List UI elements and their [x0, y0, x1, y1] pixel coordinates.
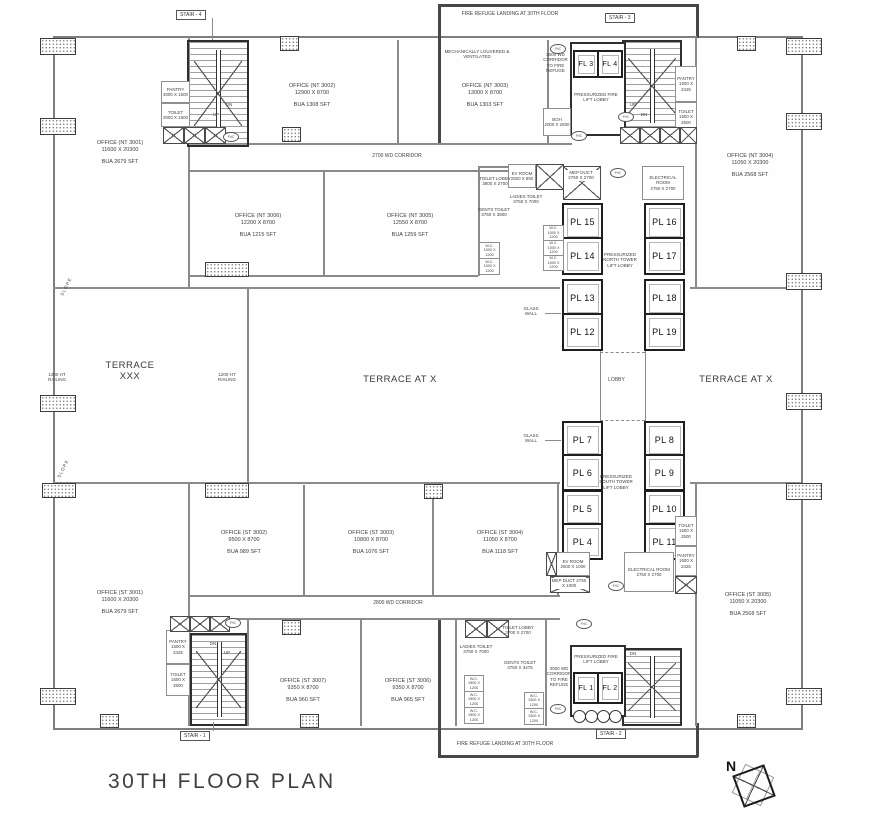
- office-dims: 12550 X 8700: [360, 220, 460, 227]
- column-marker: [100, 714, 119, 728]
- glass-wall-label: GLASS WALL: [518, 306, 544, 317]
- column-marker: [786, 393, 822, 410]
- room-label: LADIES TOILET: [510, 194, 543, 199]
- stair-2-tag: STAIR - 2: [596, 729, 626, 739]
- column-marker: [40, 118, 76, 135]
- shaft-duct: [536, 164, 564, 190]
- office-name: OFFICE (NT 3005): [360, 213, 460, 220]
- wc-cubicle: W.C.1500 X 1200: [543, 225, 564, 241]
- wc-cubicle: W.C.1500 X 1200: [464, 675, 484, 692]
- fire-corridor-label-bottom: 3000 WD CORRIDOR TO FIRE REFUGE: [546, 666, 572, 688]
- office-dims: 9500 X 8700: [194, 537, 294, 544]
- room-dims: 3800 X 2700: [482, 181, 508, 186]
- office-dims: 13000 X 8700: [435, 90, 535, 97]
- fhc-tag: FHC: [608, 581, 624, 591]
- pantry-room: PANTRY1500 X 2425: [675, 546, 697, 576]
- wall: [360, 618, 362, 726]
- lift-pl19: PL 19: [644, 313, 685, 351]
- room-label: TOILET LOBBY: [479, 176, 511, 181]
- office-label-nt3006: OFFICE (NT 3006)12200 X 8700BUA 1215 SFT: [208, 213, 308, 239]
- wc-cubicle: W.C.1500 X 1200: [524, 708, 544, 725]
- office-dims: 11050 X 20300: [698, 599, 798, 606]
- mep-duct-label: MEP DUCT 2750 X 1000: [551, 578, 587, 589]
- room-dims: 2750 X 2700: [568, 175, 594, 180]
- column-marker: [282, 620, 301, 635]
- office-label-st3004: OFFICE (ST 3004)11050 X 8700BUA 1118 SFT: [450, 530, 550, 556]
- office-area: BUA 2568 SFT: [698, 611, 798, 618]
- office-label-nt3004: OFFICE (NT 3004)11050 X 20300BUA 2568 SF…: [700, 153, 800, 179]
- refuge-note-top: FIRE REFUGE LANDING AT 30TH FLOOR: [430, 11, 590, 17]
- room-dims: 1500 X 2500: [167, 677, 189, 687]
- column-marker: [40, 38, 76, 55]
- office-dims: 11600 X 20300: [60, 147, 180, 154]
- room-dims: 1500 X 1200: [465, 713, 483, 722]
- railing-label-right: 1200 HT RAILING: [212, 372, 242, 383]
- room-dims: 3000 X 1500: [163, 115, 188, 120]
- office-name: OFFICE (NT 3001): [60, 140, 180, 147]
- room-dims: 3750 X 7000: [463, 649, 489, 654]
- lift-pl7: PL 7: [562, 421, 603, 458]
- stair-1-tag: STAIR - 1: [180, 731, 210, 741]
- floor-plan-canvas: FIRE REFUGE LANDING AT 30TH FLOOR FIRE R…: [0, 0, 879, 814]
- room-label: LADIES TOILET: [460, 644, 493, 649]
- room-dims: 1500 X 1200: [544, 261, 563, 270]
- room-dims: 2750 X 2700: [651, 186, 676, 191]
- office-area: BUA 965 SFT: [360, 697, 456, 704]
- gents-toilet-label: GENTS TOILET3750 X 3800: [474, 207, 514, 218]
- room-dims: 1500 X 1200: [525, 698, 543, 707]
- compass-square: [732, 764, 776, 808]
- fhc-tag: FHC: [225, 618, 241, 628]
- stair-up-label: UP: [209, 112, 223, 117]
- refuge-outline: [438, 755, 698, 758]
- office-dims: 10800 X 8700: [321, 537, 421, 544]
- wc-cubicle: W.C.1500 X 1200: [543, 255, 564, 271]
- lift-pl14: PL 14: [562, 237, 603, 275]
- wall: [600, 345, 601, 425]
- lift-pl16-label: PL 16: [652, 217, 677, 227]
- column-marker: [786, 688, 822, 705]
- lift-fl3: FL 3: [573, 50, 599, 78]
- corridor-label-top: 2700 WD CORRIDOR: [322, 153, 472, 159]
- fhc-tag: FHC: [571, 131, 587, 141]
- stair-3-tag: STAIR - 3: [605, 13, 635, 23]
- room-dims: 2500 X 1000: [561, 564, 586, 569]
- office-area: BUA 1076 SFT: [321, 549, 421, 556]
- lift-pl15: PL 15: [562, 203, 603, 241]
- south-lift-lobby-label: PRESSURIZED SOUTH TOWER LIFT LOBBY: [594, 474, 638, 490]
- office-dims: 11050 X 8700: [450, 537, 550, 544]
- ev-room: EV ROOM2500 X 1000: [556, 552, 590, 576]
- fhc-tag: FHC: [550, 44, 566, 54]
- office-dims: 12900 X 8700: [262, 90, 362, 97]
- office-name: OFFICE (NT 3003): [435, 83, 535, 90]
- toilet-lobby-label: TOILET LOBBY3700 X 2700: [500, 625, 536, 636]
- wc-cubicle: W.C.1500 X 1200: [479, 242, 500, 259]
- stair-dn-label: DN: [222, 102, 236, 107]
- lift-pl9: PL 9: [644, 454, 685, 491]
- wall: [455, 618, 457, 726]
- office-dims: 9350 X 8700: [253, 685, 353, 692]
- toilet-room: TOILET1500 X 2500: [166, 664, 190, 696]
- office-label-st3007: OFFICE (ST 3007)9350 X 8700BUA 960 SFT: [253, 678, 353, 704]
- fhc-tag: FHC: [618, 112, 634, 122]
- column-marker: [282, 127, 301, 142]
- leader-line: [213, 722, 214, 731]
- wall: [432, 485, 434, 596]
- shaft-duct: [680, 127, 697, 144]
- column-marker: [205, 262, 249, 277]
- room-label: ELECTRICAL ROOM: [643, 175, 683, 185]
- north-letter: N: [726, 758, 736, 774]
- ev-room: EV ROOM2500 X 850: [508, 164, 536, 188]
- column-marker: [205, 483, 249, 498]
- lift-pl18-label: PL 18: [652, 293, 677, 303]
- shaft-duct: [675, 576, 697, 594]
- shaft-duct: [184, 127, 205, 144]
- lift-pl12: PL 12: [562, 313, 603, 351]
- north-lift-lobby-label: PRESSURIZED NORTH TOWER LIFT LOBBY: [598, 252, 642, 268]
- gents-toilet-label: GENTS TOILET3750 X 3475: [502, 660, 538, 671]
- shaft-duct: [620, 127, 640, 144]
- room-dims: 1500 X 1200: [480, 248, 499, 257]
- lift-pl5-label: PL 5: [573, 504, 592, 514]
- office-name: OFFICE (ST 3006): [360, 678, 456, 685]
- lift-fl4-label: FL 4: [603, 61, 618, 68]
- wall: [303, 485, 305, 596]
- office-label-st3006: OFFICE (ST 3006)9350 X 8700BUA 965 SFT: [360, 678, 456, 704]
- office-label-nt3005: OFFICE (NT 3005)12550 X 8700BUA 1259 SFT: [360, 213, 460, 239]
- north-arrow: N: [728, 756, 774, 806]
- lift-pl17-label: PL 17: [652, 251, 677, 261]
- wall: [397, 40, 399, 144]
- office-name: OFFICE (NT 3004): [700, 153, 800, 160]
- room-dims: 1500 X 2425: [167, 644, 189, 654]
- electrical-room: ELECTRICAL ROOM2750 X 2700: [624, 552, 674, 592]
- fhc-tag: FHC: [223, 132, 239, 142]
- refuge-outline: [696, 723, 699, 757]
- office-dims: 9350 X 8700: [360, 685, 456, 692]
- column-marker: [737, 36, 756, 51]
- lift-fl2: FL 2: [597, 672, 623, 704]
- wall: [188, 595, 560, 597]
- office-dims: 11600 X 20300: [70, 597, 170, 604]
- office-name: OFFICE (ST 3005): [698, 592, 798, 599]
- terrace-name: TERRACE: [106, 360, 155, 371]
- wall: [690, 287, 801, 289]
- lift-fl1-label: FL 1: [579, 685, 594, 692]
- room-label: MEP DUCT: [552, 578, 575, 583]
- ladies-toilet-label: LADIES TOILET3750 X 7000: [458, 644, 494, 655]
- office-label-st3001: OFFICE (ST 3001)11600 X 20300BUA 2679 SF…: [70, 590, 170, 616]
- lift-fl3-label: FL 3: [579, 61, 594, 68]
- wall: [690, 482, 801, 484]
- terrace-center-label: TERRACE AT X: [330, 374, 470, 385]
- room-dims: 1500 X 1200: [465, 681, 483, 690]
- terrace-name: XXX: [120, 371, 141, 382]
- office-area: BUA 960 SFT: [253, 697, 353, 704]
- stair-dn-label: DN: [637, 112, 651, 117]
- wall: [323, 172, 325, 275]
- leader-line: [545, 313, 561, 314]
- mep-duct-label: MEP DUCT 2750 X 2700: [565, 170, 597, 181]
- office-area: BUA 2679 SFT: [70, 609, 170, 616]
- office-name: OFFICE (ST 3001): [70, 590, 170, 597]
- office-dims: 12200 X 8700: [208, 220, 308, 227]
- office-area: BUA 2568 SFT: [700, 172, 800, 179]
- lift-pl17: PL 17: [644, 237, 685, 275]
- room-dims: 1500 X 2500: [676, 114, 696, 124]
- corridor-label-bottom: 2800 WD CORRIDOR: [323, 600, 473, 606]
- lift-pl4-label: PL 4: [573, 537, 592, 547]
- room-dims: 2750 X 2700: [637, 572, 662, 577]
- stair-dn-label: DN: [206, 641, 220, 646]
- room-dims: 3750 X 3475: [507, 665, 533, 670]
- wall: [53, 287, 560, 289]
- fhc-tag: FHC: [576, 619, 592, 629]
- office-name: OFFICE (ST 3004): [450, 530, 550, 537]
- column-marker: [280, 36, 299, 51]
- column-marker: [737, 714, 756, 728]
- terrace-xxx-label: TERRACEXXX: [90, 360, 170, 382]
- lift-pl15-label: PL 15: [570, 217, 595, 227]
- room-dims: 1500 X 1200: [525, 714, 543, 723]
- column-marker: [786, 38, 822, 55]
- room-label: MEP DUCT: [569, 170, 592, 175]
- toilet-room: TOILET3000 X 1500: [161, 103, 190, 127]
- shaft-duct: [190, 616, 210, 632]
- lift-pl13: PL 13: [562, 279, 603, 317]
- office-name: OFFICE (NT 3006): [208, 213, 308, 220]
- room-dims: 1500 X 1200: [544, 246, 563, 255]
- office-area: BUA 1308 SFT: [262, 102, 362, 109]
- lift-fl4: FL 4: [597, 50, 623, 78]
- fhc-tag: FHC: [610, 168, 626, 178]
- wall: [53, 482, 560, 484]
- lift-fl2-label: FL 2: [603, 685, 618, 692]
- wc-cubicle: W.C.1500 X 1200: [543, 240, 564, 256]
- column-marker: [300, 714, 319, 728]
- lift-pl11-label: PL 11: [652, 537, 676, 547]
- office-label-nt3002: OFFICE (NT 3002)12900 X 8700BUA 1308 SFT: [262, 83, 362, 109]
- room-dims: 1500 X 2425: [676, 558, 696, 568]
- office-label-st3002: OFFICE (ST 3002)9500 X 8700BUA 989 SFT: [194, 530, 294, 556]
- column-marker: [40, 688, 76, 705]
- electrical-room: ELECTRICAL ROOM2750 X 2700: [642, 166, 684, 200]
- column-marker: [424, 484, 443, 499]
- office-label-nt3001: OFFICE (NT 3001)11600 X 20300BUA 2679 SF…: [60, 140, 180, 166]
- lift-pl12-label: PL 12: [570, 327, 595, 337]
- office-label-st3005: OFFICE (ST 3005)11050 X 20300BUA 2568 SF…: [698, 592, 798, 618]
- lobby-dash-line: [600, 352, 645, 353]
- stair-up-label: UP: [626, 102, 640, 107]
- office-area: BUA 1303 SFT: [435, 102, 535, 109]
- room-dims: 3700 X 2700: [505, 630, 531, 635]
- boh-room: BOH2000 X 2600: [543, 108, 571, 136]
- pantry-room: PANTRY3000 X 1500: [161, 81, 190, 103]
- ladies-toilet-label: LADIES TOILET3750 X 7000: [508, 194, 544, 205]
- pantry-room: PANTRY1500 X 2425: [675, 66, 697, 102]
- office-name: OFFICE (NT 3002): [262, 83, 362, 90]
- column-marker: [40, 395, 76, 412]
- lift-pl13-label: PL 13: [570, 293, 595, 303]
- wall: [188, 170, 560, 172]
- railing-label-left: 1200 HT RAILING: [42, 372, 72, 383]
- column-circle: [609, 710, 622, 723]
- wc-cubicle: W.C.1500 X 1200: [464, 707, 484, 724]
- column-marker: [786, 273, 822, 290]
- office-area: BUA 1215 SFT: [208, 232, 308, 239]
- room-dims: 1500 X 2500: [676, 528, 696, 538]
- fire-lift-lobby-top-label: PRESSURIZED FIRE LIFT LOBBY: [572, 92, 620, 103]
- room-label: TOILET LOBBY: [502, 625, 534, 630]
- leader-line: [212, 18, 213, 40]
- room-dims: 3750 X 3800: [481, 212, 507, 217]
- shaft-duct: [465, 620, 487, 638]
- room-dims: 3000 X 1500: [163, 92, 188, 97]
- shaft-duct: [640, 127, 660, 144]
- office-dims: 11050 X 20300: [700, 160, 800, 167]
- mechanical-note: MECHANICALLY LOUVERED & VENTILATED: [440, 49, 514, 60]
- wc-cubicle: W.C.1500 X 1200: [524, 692, 544, 709]
- office-name: OFFICE (ST 3002): [194, 530, 294, 537]
- office-label-st3003: OFFICE (ST 3003)10800 X 8700BUA 1076 SFT: [321, 530, 421, 556]
- wall: [247, 618, 249, 726]
- room-dims: 1500 X 1200: [544, 231, 563, 240]
- refuge-outline: [438, 4, 698, 7]
- column-marker: [42, 483, 76, 498]
- refuge-outline: [438, 4, 441, 143]
- office-area: BUA 1118 SFT: [450, 549, 550, 556]
- leader-line: [545, 440, 561, 441]
- stair-up-label: UP: [220, 650, 234, 655]
- stair-4-tag: STAIR - 4: [176, 10, 206, 20]
- wall: [645, 345, 646, 425]
- pantry-room: PANTRY1500 X 2425: [166, 630, 190, 664]
- wc-cubicle: W.C.1500 X 1200: [479, 258, 500, 275]
- lift-pl16: PL 16: [644, 203, 685, 241]
- office-area: BUA 2679 SFT: [60, 159, 180, 166]
- refuge-outline: [696, 4, 699, 38]
- room-label: GENTS TOILET: [478, 207, 510, 212]
- wall: [247, 287, 249, 483]
- office-name: OFFICE (ST 3003): [321, 530, 421, 537]
- fire-lift-lobby-bottom-label: PRESSURIZED FIRE LIFT LOBBY: [572, 654, 620, 665]
- wc-cubicle: W.C.1500 X 1200: [464, 691, 484, 708]
- lift-pl5: PL 5: [562, 490, 603, 527]
- lift-pl19-label: PL 19: [652, 327, 677, 337]
- shaft-duct: [660, 127, 680, 144]
- room-dims: 1500 X 1200: [465, 697, 483, 706]
- office-area: BUA 1259 SFT: [360, 232, 460, 239]
- office-area: BUA 989 SFT: [194, 549, 294, 556]
- lift-pl7-label: PL 7: [573, 435, 592, 445]
- fhc-tag: FHC: [550, 704, 566, 714]
- column-marker: [786, 483, 822, 500]
- column-marker: [786, 113, 822, 130]
- lift-pl9-label: PL 9: [655, 468, 674, 478]
- office-label-nt3003: OFFICE (NT 3003)13000 X 8700BUA 1303 SFT: [435, 83, 535, 109]
- stair-2-core: [622, 648, 682, 726]
- lift-pl8-label: PL 8: [655, 435, 674, 445]
- toilet-lobby-label: TOILET LOBBY3800 X 2700: [478, 176, 512, 187]
- lift-pl14-label: PL 14: [570, 251, 595, 261]
- lift-pl8: PL 8: [644, 421, 685, 458]
- room-dims: 2500 X 850: [511, 176, 533, 181]
- lift-pl18: PL 18: [644, 279, 685, 317]
- lift-pl6-label: PL 6: [573, 468, 592, 478]
- room-dims: 1500 X 2425: [676, 81, 696, 91]
- room-dims: 2000 X 2600: [545, 122, 570, 127]
- lobby-label: LOBBY: [594, 377, 639, 383]
- stair-dn-label: DN: [626, 651, 640, 656]
- plan-title: 30TH FLOOR PLAN: [108, 770, 336, 794]
- room-label: GENTS TOILET: [504, 660, 536, 665]
- stair-1-core: [190, 633, 247, 726]
- room-dims: 3750 X 7000: [513, 199, 539, 204]
- shaft-duct: [170, 616, 190, 632]
- toilet-room: TOILET1500 X 2500: [675, 516, 697, 546]
- lift-pl10-label: PL 10: [652, 504, 677, 514]
- fire-corridor-label-top: 3000 WD CORRIDOR TO FIRE REFUGE: [542, 52, 569, 74]
- refuge-note-bottom: FIRE REFUGE LANDING AT 30TH FLOOR: [425, 741, 585, 747]
- room-dims: 1500 X 1200: [480, 264, 499, 273]
- office-name: OFFICE (ST 3007): [253, 678, 353, 685]
- lobby-dash-line: [600, 420, 645, 421]
- lift-fl1: FL 1: [573, 672, 599, 704]
- glass-wall-label: GLASS WALL: [518, 433, 544, 444]
- terrace-right-label: TERRACE AT X: [676, 374, 796, 385]
